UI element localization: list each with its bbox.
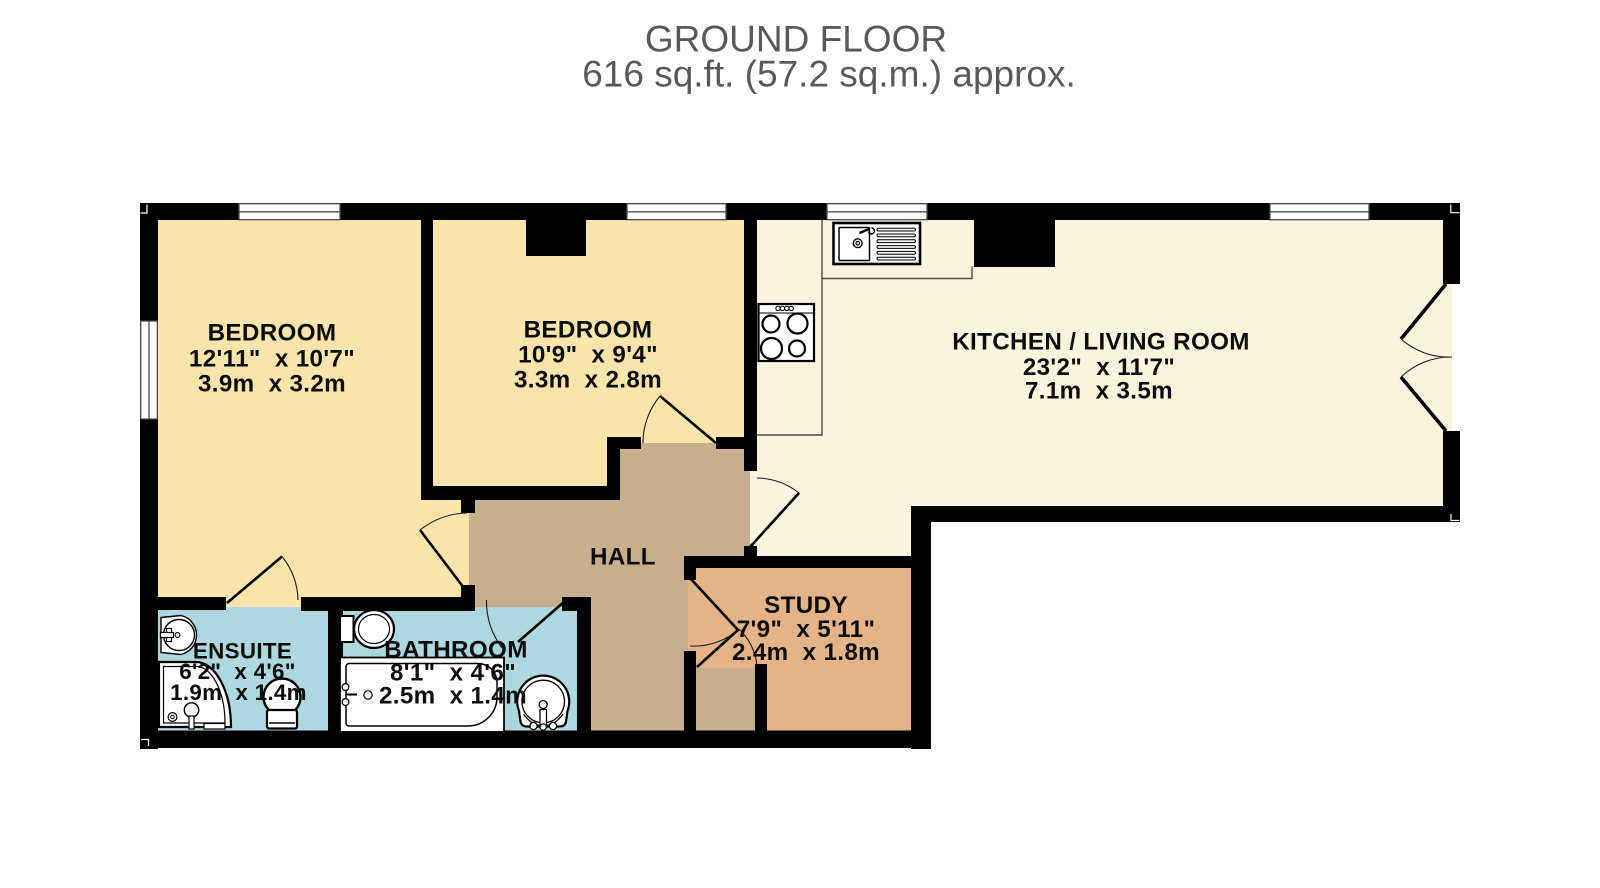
svg-text:STUDY: STUDY	[764, 592, 848, 619]
svg-text:BEDROOM: BEDROOM	[208, 320, 337, 347]
svg-text:10'9" x 9'4": 10'9" x 9'4"	[518, 342, 658, 369]
svg-text:3.3m x 2.8m: 3.3m x 2.8m	[514, 367, 662, 394]
svg-text:HALL: HALL	[590, 544, 656, 571]
svg-text:BEDROOM: BEDROOM	[524, 317, 653, 344]
svg-text:7.1m x 3.5m: 7.1m x 3.5m	[1025, 378, 1173, 405]
svg-text:3.9m x 3.2m: 3.9m x 3.2m	[198, 370, 346, 397]
svg-text:12'11" x 10'7": 12'11" x 10'7"	[189, 345, 355, 372]
svg-text:KITCHEN / LIVING ROOM: KITCHEN / LIVING ROOM	[952, 329, 1250, 356]
svg-text:1.9m x 1.4m: 1.9m x 1.4m	[170, 680, 307, 705]
svg-text:2.4m x 1.8m: 2.4m x 1.8m	[732, 639, 880, 666]
svg-text:2.5m x 1.4m: 2.5m x 1.4m	[379, 683, 527, 710]
svg-text:616 sq.ft. (57.2 sq.m.) approx: 616 sq.ft. (57.2 sq.m.) approx.	[582, 54, 1076, 95]
